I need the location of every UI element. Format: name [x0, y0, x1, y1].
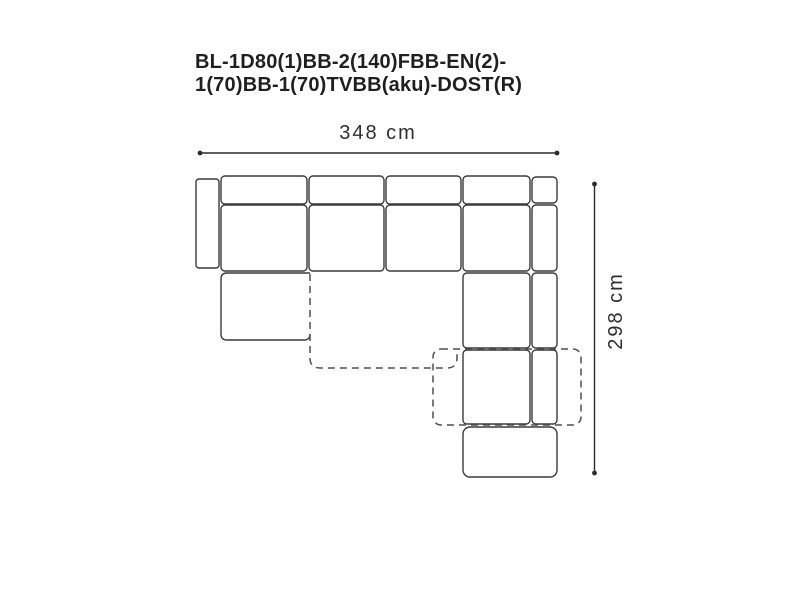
right-seat-cushion-2: [463, 350, 530, 424]
seat2-cushion: [309, 205, 384, 271]
width-dimension-start-dot: [198, 151, 203, 156]
sofa-outline: [196, 176, 557, 477]
pull-out-extension: [310, 274, 581, 425]
right-backrest-strip-3: [532, 350, 557, 424]
ottoman: [463, 427, 557, 477]
right-backrest-strip-1: [532, 205, 557, 271]
extension-dashed-rect: [433, 349, 581, 425]
height-dimension-start-dot: [592, 182, 597, 187]
width-dimension: 348 cm: [198, 122, 560, 155]
seat1-backrest: [221, 176, 307, 204]
height-dimension: 298 cm: [592, 182, 627, 476]
product-dimension-page: BL-1D80(1)BB-2(140)FBB-EN(2)- 1(70)BB-1(…: [0, 0, 800, 600]
height-dimension-label: 298 cm: [605, 272, 627, 350]
right-seat-cushion-1: [463, 273, 530, 348]
right-backrest-strip-2: [532, 273, 557, 348]
seat1-cushion: [221, 205, 307, 271]
left-armrest: [196, 179, 219, 268]
width-dimension-end-dot: [555, 151, 560, 156]
sofa-top-view-diagram: 348 cm 298 cm: [0, 0, 800, 600]
corner-backrest-square: [532, 177, 557, 203]
seat3-cushion: [386, 205, 461, 271]
extension-dashed-connector: [310, 274, 457, 368]
height-dimension-end-dot: [592, 471, 597, 476]
corner-seat-cushion: [463, 205, 530, 271]
corner-backrest: [463, 176, 530, 204]
width-dimension-label: 348 cm: [339, 122, 417, 144]
seat2-backrest: [309, 176, 384, 204]
chaise: [221, 273, 310, 340]
seat3-backrest: [386, 176, 461, 204]
